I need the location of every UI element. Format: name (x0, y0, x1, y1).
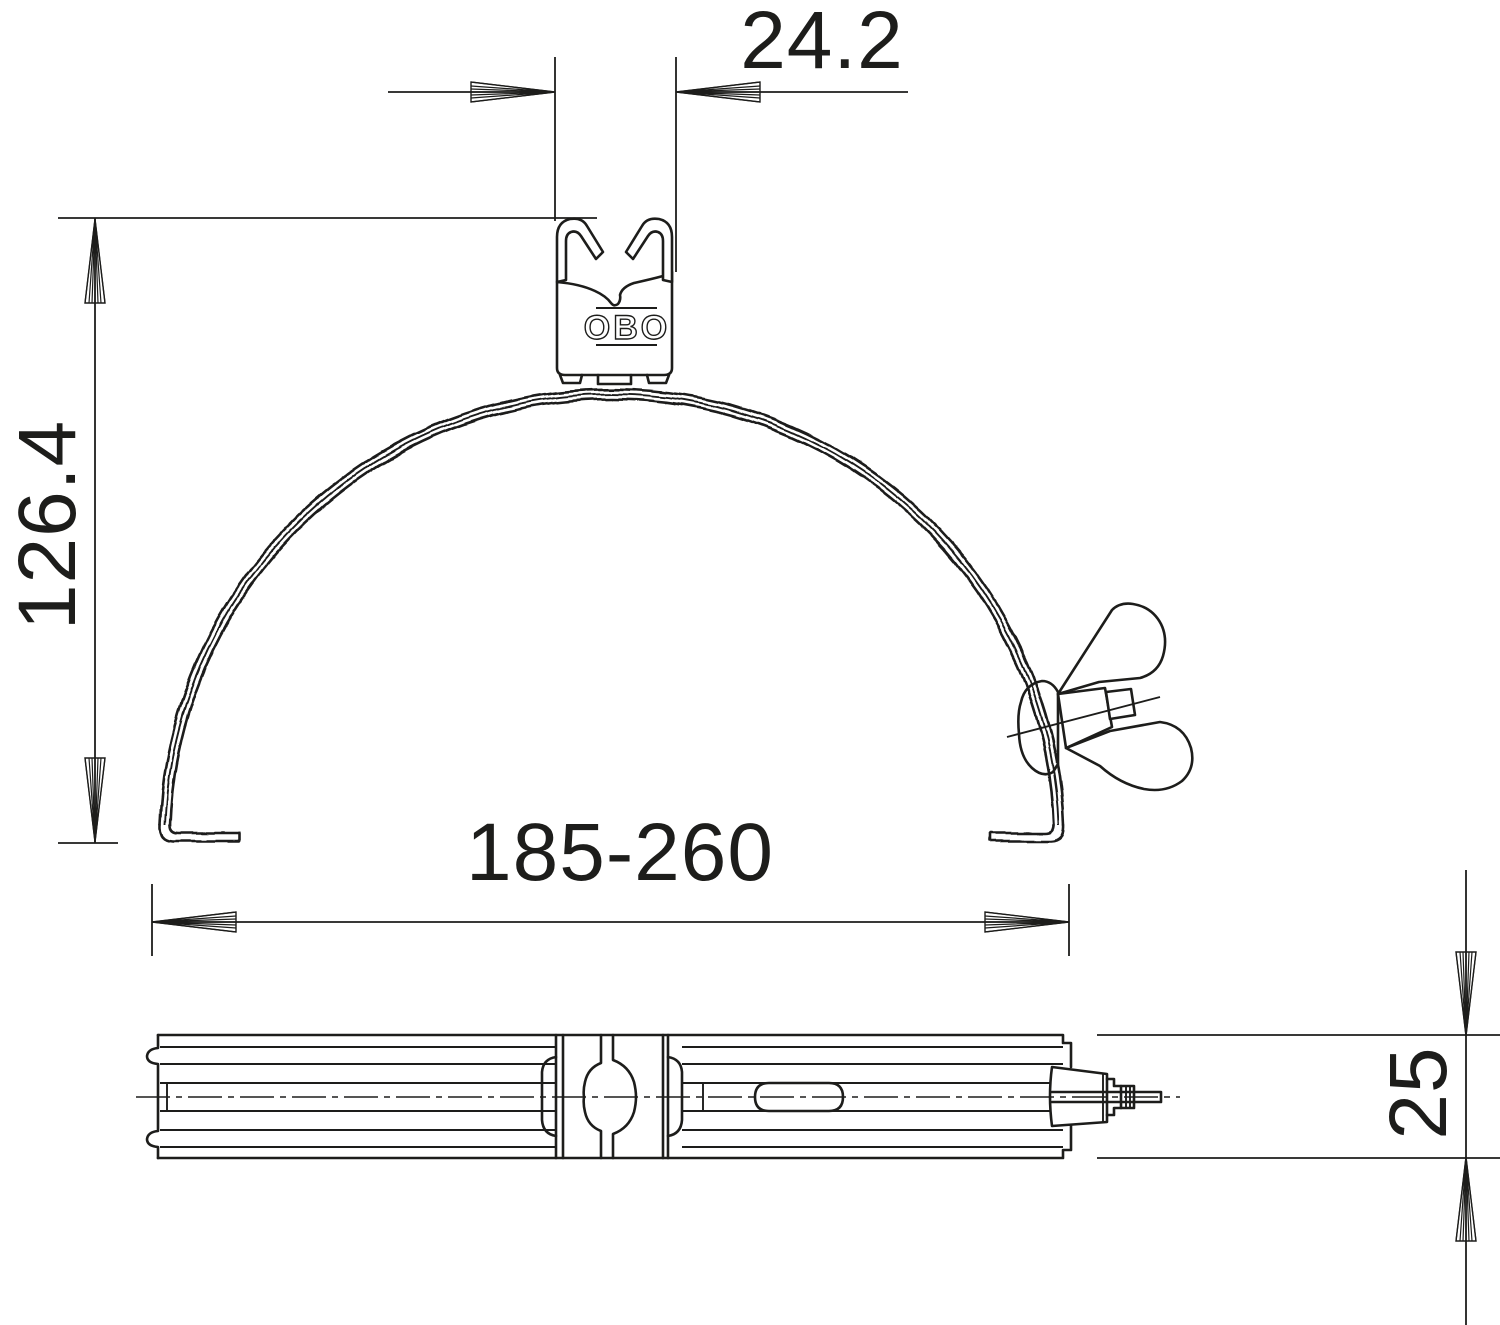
plan-view: 25 (136, 870, 1500, 1325)
band-arc (160, 389, 1064, 841)
dim-clamp-width-label: 24.2 (740, 0, 904, 86)
band-inner-edge (170, 399, 1054, 825)
arrowhead (985, 912, 1069, 932)
arrowhead (85, 758, 105, 842)
drawing-sheet: OBO 24.2 126.4 (0, 0, 1500, 1325)
dim-overall-height-label: 126.4 (2, 420, 93, 630)
band-middle-line (165, 394, 1059, 825)
band-foot-left (160, 825, 240, 841)
clamp-front: OBO (557, 219, 672, 384)
arrowhead (85, 219, 105, 303)
logo-text: OBO (584, 309, 670, 347)
arrowhead (1456, 1157, 1476, 1241)
clamp-hook-right (626, 219, 672, 282)
dim-band-width-label: 25 (1373, 1046, 1464, 1139)
arrowhead (1456, 952, 1476, 1036)
wing-upper (1058, 604, 1165, 694)
band-outer-edge (160, 389, 1064, 825)
clamp-center-tab (598, 375, 631, 384)
dimension-overall-height: 126.4 (2, 218, 597, 843)
clamp-hook-left (557, 219, 603, 282)
band-strip-top-edge (158, 1035, 1071, 1067)
arrowhead (152, 912, 236, 932)
dimension-clamping-range: 185-260 (152, 807, 1069, 956)
technical-drawing: OBO 24.2 126.4 (0, 0, 1500, 1325)
obo-logo-stamp: OBO (584, 308, 670, 347)
band-foot-right (990, 825, 1064, 841)
front-view: OBO 24.2 126.4 (2, 0, 1192, 956)
dim-clamping-range-label: 185-260 (466, 807, 774, 898)
arrowhead (471, 82, 555, 102)
